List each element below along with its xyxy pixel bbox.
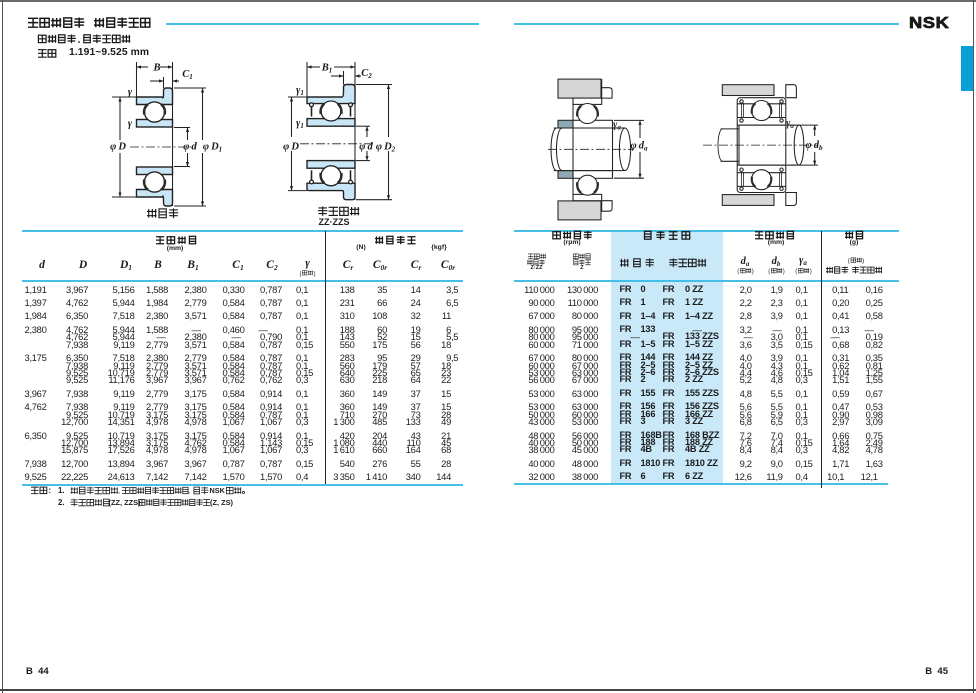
svg-text:φ D1: φ D1 [203,142,222,154]
svg-text:da: da [741,256,750,268]
svg-text:φ D: φ D [283,142,299,153]
svg-text:D: D [78,259,88,271]
svg-text:D1: D1 [119,259,132,272]
svg-text:γ1: γ1 [296,118,304,130]
svg-text:C1: C1 [182,69,193,81]
svg-text:): ) [862,259,864,265]
svg-text:B1: B1 [186,259,198,272]
svg-text:(: ( [300,272,302,278]
svg-text:db: db [772,256,781,268]
svg-text:γ: γ [128,119,133,130]
svg-text:γa: γa [613,120,621,132]
svg-text:φ db: φ db [806,140,824,152]
svg-text:(: ( [795,269,797,275]
svg-text:γ: γ [128,87,133,98]
svg-text:φ D2: φ D2 [376,142,396,154]
svg-text:γa: γa [786,118,794,130]
svg-text:d: d [39,259,45,271]
svg-text:C2: C2 [266,259,278,272]
svg-text:Cr: Cr [343,259,354,272]
svg-text:γ1: γ1 [296,85,304,97]
svg-text:γa: γa [799,255,807,267]
svg-text:B: B [152,63,160,74]
svg-text:φ da: φ da [631,141,649,153]
svg-text:B1: B1 [321,63,333,75]
svg-text:C2: C2 [361,68,372,80]
svg-text:φ d: φ d [359,142,373,153]
svg-text:Cr: Cr [411,259,422,272]
svg-text:B: B [153,259,162,271]
svg-text:): ) [752,269,754,275]
svg-text:C0r: C0r [441,259,455,272]
svg-text:(: ( [848,259,850,265]
svg-text:C0r: C0r [373,259,387,272]
svg-text:): ) [783,269,785,275]
svg-text:φ D: φ D [110,142,126,153]
svg-text:γ: γ [305,257,310,269]
svg-text:): ) [314,272,316,278]
svg-text:C1: C1 [232,259,243,272]
svg-text:): ) [810,269,812,275]
svg-text:(: ( [737,269,739,275]
svg-text:(: ( [768,269,770,275]
